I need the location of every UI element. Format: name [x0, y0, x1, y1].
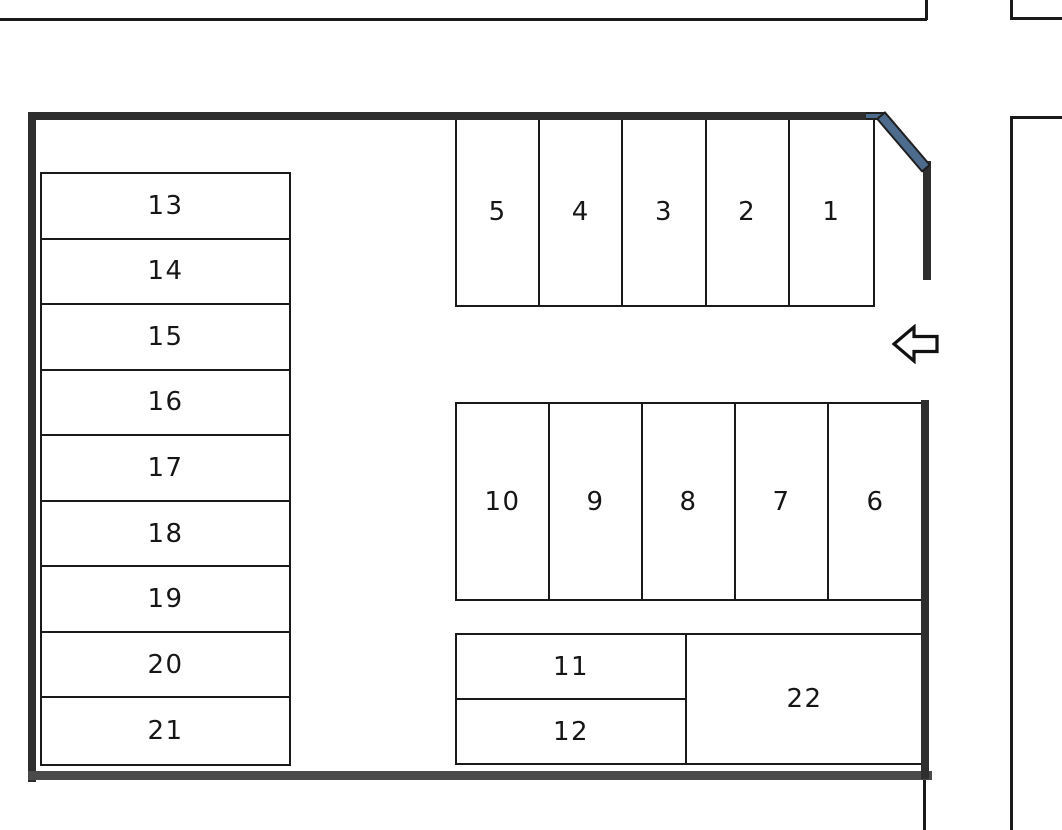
space-15: 15	[42, 305, 289, 371]
space-4: 4	[540, 118, 623, 305]
space-1-label: 1	[822, 199, 840, 225]
space-12: 12	[457, 700, 685, 763]
space-9-label: 9	[586, 489, 604, 515]
lot-wall-top	[28, 112, 886, 120]
top-right-block-left-edge	[1010, 0, 1013, 19]
lot-wall-right-upper	[923, 161, 931, 280]
space-9: 9	[550, 404, 643, 599]
space-10-label: 10	[484, 489, 520, 515]
bottom-stall-group: 11 12 22	[455, 633, 924, 765]
space-18-label: 18	[147, 521, 183, 547]
bottom-left-stack: 11 12	[457, 635, 687, 763]
space-8-label: 8	[679, 489, 697, 515]
left-stall-column: 13 14 15 16 17 18 19 20 21	[40, 172, 291, 766]
parking-lot-diagram: 5 4 3 2 1 10 9 8 7 6 13 14 15 16 17 18 1…	[0, 0, 1062, 830]
space-4-label: 4	[572, 199, 590, 225]
space-15-label: 15	[147, 324, 183, 350]
space-7: 7	[736, 404, 829, 599]
space-19-label: 19	[147, 586, 183, 612]
lot-wall-left	[28, 112, 36, 782]
top-right-block-bottom-edge	[1010, 17, 1062, 20]
space-20: 20	[42, 633, 289, 699]
lot-wall-right-lower	[921, 400, 929, 779]
space-2-label: 2	[738, 199, 756, 225]
lot-edge-extension-line	[923, 779, 926, 830]
space-22: 22	[687, 635, 922, 763]
top-block-bottom-edge	[0, 18, 927, 21]
lot-wall-bottom	[28, 771, 932, 780]
space-21: 21	[42, 698, 289, 764]
space-13: 13	[42, 174, 289, 240]
space-19: 19	[42, 567, 289, 633]
space-6-label: 6	[866, 489, 884, 515]
entrance-gate-diagonal	[876, 111, 931, 173]
right-road-edge	[1010, 116, 1013, 830]
space-3-label: 3	[655, 199, 673, 225]
space-17-label: 17	[147, 455, 183, 481]
space-14: 14	[42, 240, 289, 306]
space-3: 3	[623, 118, 706, 305]
space-6: 6	[829, 404, 922, 599]
space-10: 10	[457, 404, 550, 599]
top-block-right-edge	[925, 0, 928, 20]
space-5: 5	[457, 118, 540, 305]
space-14-label: 14	[147, 258, 183, 284]
space-16: 16	[42, 371, 289, 437]
space-13-label: 13	[147, 193, 183, 219]
space-17: 17	[42, 436, 289, 502]
space-16-label: 16	[147, 389, 183, 415]
space-1: 1	[790, 118, 873, 305]
space-8: 8	[643, 404, 736, 599]
right-block-top-edge	[1010, 116, 1062, 119]
space-20-label: 20	[147, 652, 183, 678]
space-21-label: 21	[147, 718, 183, 744]
space-11: 11	[457, 635, 685, 700]
space-7-label: 7	[772, 489, 790, 515]
entrance-arrow-icon	[892, 324, 940, 364]
space-12-label: 12	[553, 719, 589, 745]
space-2: 2	[707, 118, 790, 305]
middle-stall-row: 10 9 8 7 6	[455, 402, 924, 601]
space-11-label: 11	[553, 654, 589, 680]
top-stall-row: 5 4 3 2 1	[455, 116, 875, 307]
space-18: 18	[42, 502, 289, 568]
space-5-label: 5	[489, 199, 507, 225]
space-22-label: 22	[786, 686, 822, 712]
